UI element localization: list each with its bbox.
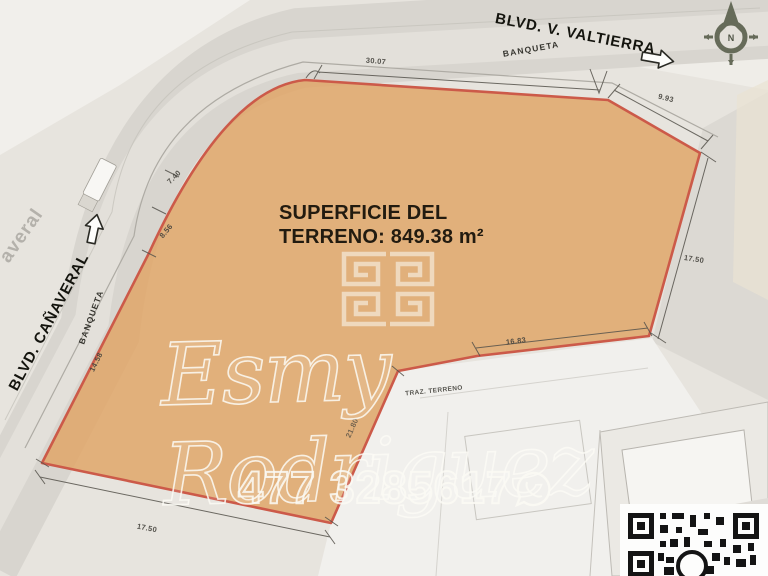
parcel-area-line1: SUPERFICIE DEL [279,201,484,225]
parcel-area-text: SUPERFICIE DEL TERRENO: 849.38 m² [279,201,484,250]
qr-code [620,504,768,576]
phone-watermark: 477 3285617 [238,462,512,514]
satellite-survey-map: averal BLVD. V. VALTIERRA BANQUETA BLVD.… [0,0,768,576]
monogram-watermark-icon [340,250,436,328]
parcel-area-line2: TERRENO: 849.38 m² [279,225,484,249]
whatsapp-icon [512,468,554,510]
compass-north-label: N [728,33,735,43]
dim-top-curve: 30.07 [366,56,387,67]
compass-icon: N [696,0,766,70]
